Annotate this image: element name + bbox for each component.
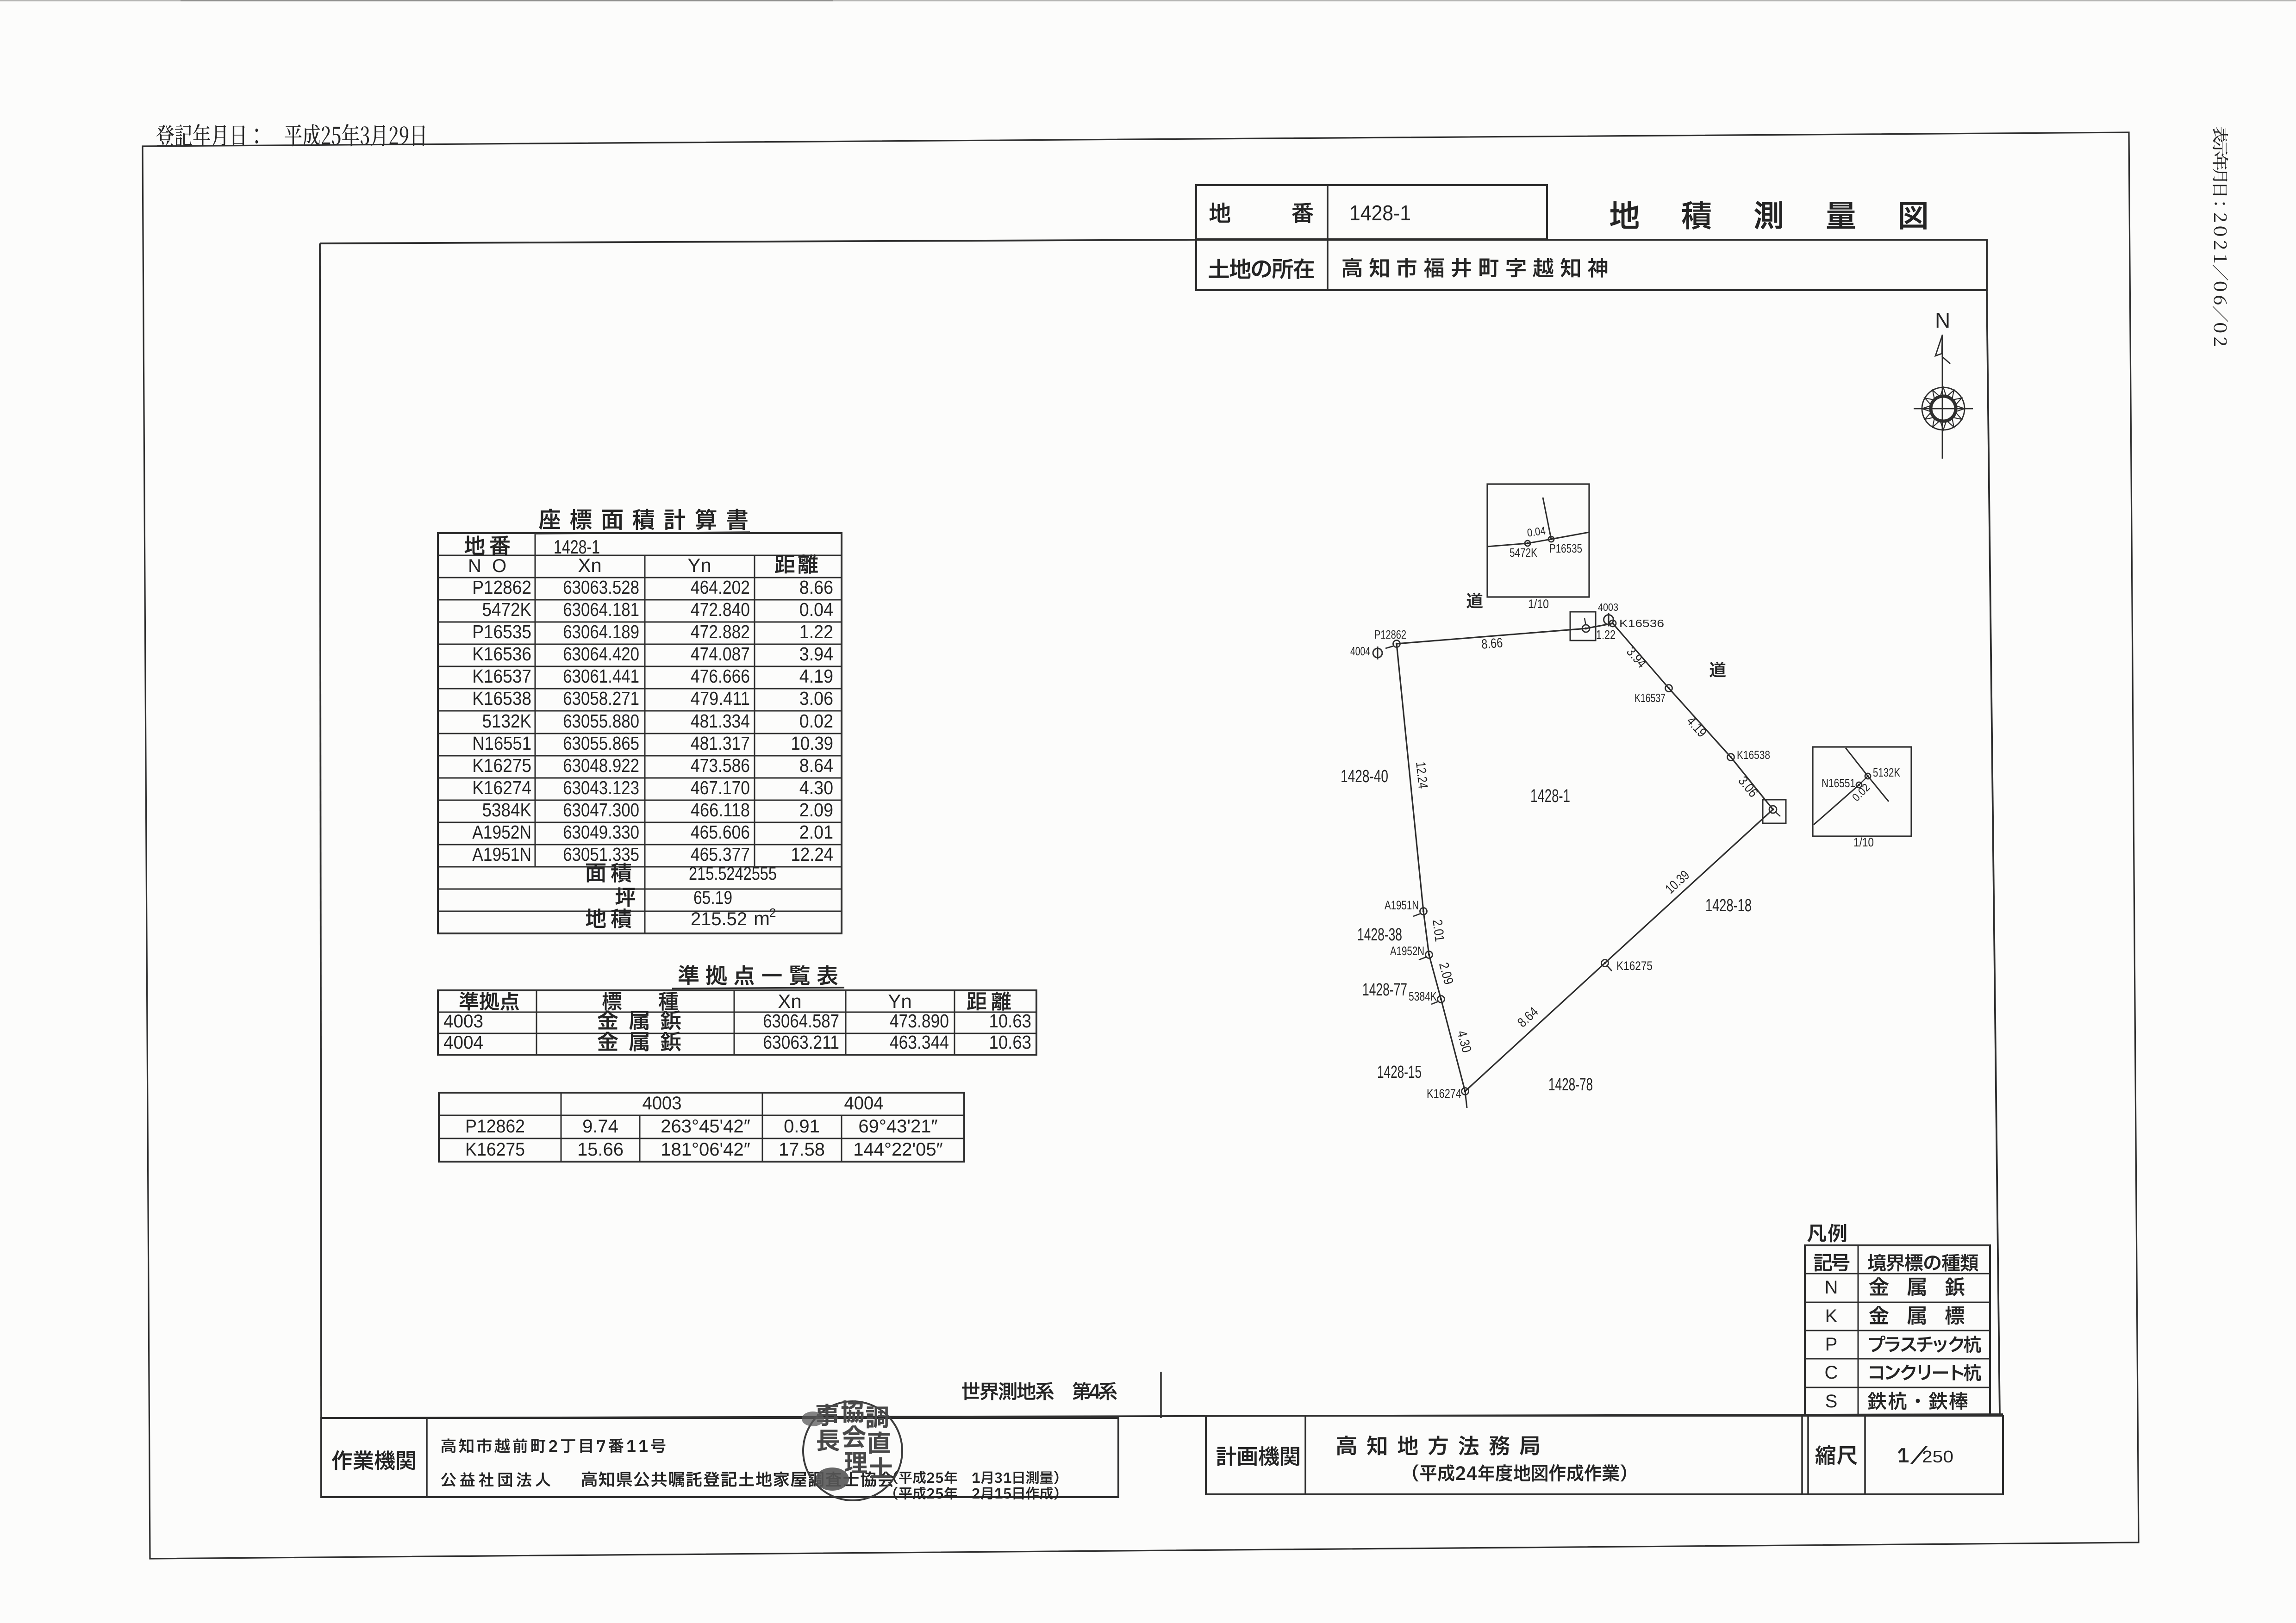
svg-text:4004: 4004 [844,1093,884,1113]
svg-text:15.66: 15.66 [577,1139,624,1160]
svg-text:8.64: 8.64 [799,755,833,776]
svg-text:N: N [1825,1277,1838,1298]
svg-text:1/10: 1/10 [1528,597,1549,611]
svg-text:10.63: 10.63 [989,1010,1032,1032]
svg-text:479.411: 479.411 [691,688,750,709]
svg-text:2.01: 2.01 [799,821,833,843]
svg-text:464.202: 464.202 [691,577,750,598]
svg-text:63064.189: 63064.189 [563,621,639,642]
svg-text:K16538: K16538 [1737,749,1770,762]
svg-text:69°43'21″: 69°43'21″ [858,1116,937,1137]
svg-text:K16537: K16537 [472,665,531,687]
svg-text:4.19: 4.19 [799,665,833,687]
svg-text:1.22: 1.22 [1596,628,1616,642]
svg-text:P12862: P12862 [465,1116,525,1137]
svg-text:465.377: 465.377 [691,844,750,865]
svg-text:466.118: 466.118 [691,799,750,821]
svg-text:473.890: 473.890 [890,1010,949,1032]
svg-text:63061.441: 63061.441 [563,665,639,687]
svg-text:9.74: 9.74 [582,1116,618,1137]
svg-text:5132K: 5132K [482,710,532,732]
svg-text:K16275: K16275 [472,755,531,776]
svg-text:65.19: 65.19 [693,888,732,908]
svg-text:K16537: K16537 [1635,691,1666,705]
svg-text:2.09: 2.09 [799,799,833,821]
svg-text:473.586: 473.586 [691,755,750,776]
svg-text:4004: 4004 [443,1032,483,1053]
svg-text:17.58: 17.58 [779,1139,825,1160]
svg-text:10.39: 10.39 [791,733,834,754]
svg-text:C: C [1825,1362,1838,1383]
svg-text:1428-77: 1428-77 [1362,980,1407,1000]
svg-text:63064.181: 63064.181 [563,599,639,620]
svg-text:1428-78: 1428-78 [1548,1075,1593,1094]
svg-text:472.882: 472.882 [691,621,750,642]
svg-text:2.01: 2.01 [1429,919,1447,943]
svg-text:Yn: Yn [687,554,711,576]
svg-text:Xn: Xn [778,990,801,1012]
svg-text:63043.123: 63043.123 [563,777,639,798]
svg-text:63051.335: 63051.335 [563,844,639,865]
svg-text:Xn: Xn [578,554,601,576]
svg-text:N16551: N16551 [1822,776,1855,790]
svg-text:481.317: 481.317 [691,733,750,754]
svg-text:1428-1: 1428-1 [1349,201,1411,225]
svg-text:K16274: K16274 [1427,1087,1461,1101]
svg-text:63049.330: 63049.330 [563,821,639,843]
svg-text:63055.865: 63055.865 [563,733,639,754]
svg-text:215.52: 215.52 [691,909,747,929]
svg-text:63063.211: 63063.211 [763,1032,839,1053]
svg-text:4003: 4003 [643,1093,682,1113]
svg-text:465.606: 465.606 [691,821,750,843]
svg-text:A1952N: A1952N [1390,944,1424,958]
svg-text:5132K: 5132K [1873,765,1901,779]
svg-text:2: 2 [769,906,776,920]
svg-text:3.94: 3.94 [799,643,833,665]
svg-text:S: S [1825,1391,1838,1412]
svg-text:63048.922: 63048.922 [563,755,639,776]
svg-text:0.91: 0.91 [784,1116,820,1137]
svg-text:63064.587: 63064.587 [763,1010,839,1032]
svg-text:144°22'05″: 144°22'05″ [853,1139,943,1160]
svg-text:63058.271: 63058.271 [563,688,639,709]
svg-text:1.22: 1.22 [799,621,833,642]
svg-text:1428-18: 1428-18 [1705,896,1752,915]
svg-text:P12862: P12862 [1374,628,1406,641]
svg-text:63064.420: 63064.420 [563,643,639,665]
svg-text:1428-38: 1428-38 [1357,925,1402,945]
svg-text:8.66: 8.66 [1481,635,1503,652]
svg-text:463.344: 463.344 [890,1032,949,1053]
svg-text:N16551: N16551 [472,733,531,754]
svg-text:63047.300: 63047.300 [563,799,639,821]
svg-text:476.666: 476.666 [691,665,750,687]
svg-text:A1951N: A1951N [472,844,531,865]
svg-text:P16535: P16535 [472,621,531,642]
svg-text:467.170: 467.170 [691,777,750,798]
svg-text:0.04: 0.04 [1526,524,1546,539]
svg-text:181°06'42″: 181°06'42″ [661,1139,750,1160]
svg-text:P16535: P16535 [1549,541,1582,555]
svg-text:A1951N: A1951N [1385,898,1419,912]
svg-text:10.63: 10.63 [989,1032,1032,1053]
svg-text:1/10: 1/10 [1853,835,1874,849]
svg-text:5472K: 5472K [1510,546,1538,560]
svg-text:474.087: 474.087 [691,643,750,665]
svg-text:4004: 4004 [1350,644,1370,658]
svg-text:K: K [1825,1306,1838,1326]
svg-text:12.24: 12.24 [1413,761,1430,790]
svg-text:m: m [754,908,770,929]
svg-text:0.04: 0.04 [799,599,833,620]
svg-text:0.02: 0.02 [799,710,833,732]
svg-text:K16536: K16536 [1619,617,1664,629]
svg-text:215.5242555: 215.5242555 [689,864,777,884]
svg-text:63063.528: 63063.528 [563,577,639,598]
svg-text:4.30: 4.30 [799,777,833,798]
svg-text:5384K: 5384K [1409,989,1437,1003]
svg-text:K16536: K16536 [472,643,531,665]
svg-text:4003: 4003 [1598,601,1618,613]
svg-text:263°45'42″: 263°45'42″ [661,1116,750,1137]
svg-text:4003: 4003 [443,1011,483,1032]
svg-text:K16274: K16274 [472,777,531,798]
svg-text:N: N [1935,308,1950,332]
svg-text:K16275: K16275 [1616,959,1653,973]
svg-text:250: 250 [1922,1447,1953,1466]
svg-text:12.24: 12.24 [791,844,834,865]
svg-text:N O: N O [468,556,509,576]
svg-text:5384K: 5384K [482,799,532,821]
svg-text:P12862: P12862 [472,577,531,598]
svg-text:P: P [1825,1334,1838,1355]
svg-text:5472K: 5472K [482,599,532,620]
svg-text:472.840: 472.840 [691,599,750,620]
svg-text:1428-15: 1428-15 [1377,1063,1422,1082]
svg-text:1428-1: 1428-1 [1530,786,1570,806]
svg-text:8.66: 8.66 [799,577,833,598]
svg-text:481.334: 481.334 [691,710,750,732]
svg-text:Yn: Yn [888,990,911,1012]
svg-text:A1952N: A1952N [472,821,531,843]
svg-text:K16538: K16538 [472,688,531,709]
svg-text:1428-40: 1428-40 [1341,767,1388,786]
svg-text:3.06: 3.06 [799,688,833,709]
svg-text:K16275: K16275 [465,1139,525,1160]
svg-text:63055.880: 63055.880 [563,710,639,732]
